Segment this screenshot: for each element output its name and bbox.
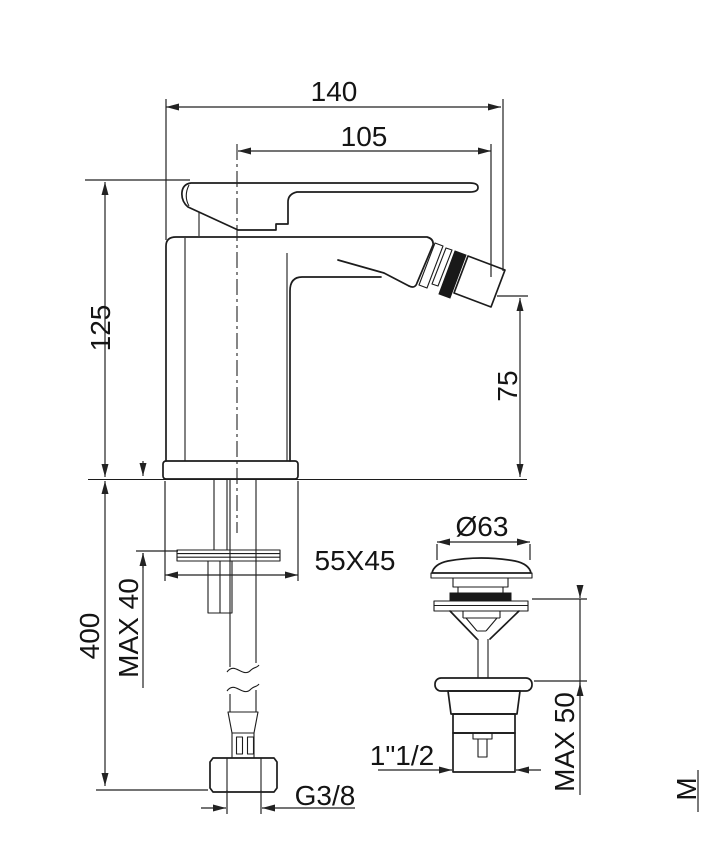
dim-waste-max-deck-label: MAX 50 [549, 692, 580, 792]
mixer-body [166, 237, 433, 461]
base-and-deck [88, 461, 527, 480]
break-symbol [227, 684, 259, 692]
waste-stem [478, 639, 488, 678]
break-symbol [227, 665, 259, 673]
edge-partial-label: M [671, 777, 702, 800]
dimension-edge-partial: M [671, 770, 702, 812]
hose-hex-nut [210, 758, 277, 792]
waste-flange [435, 678, 532, 691]
dim-base-footprint-label: 55X45 [315, 545, 396, 576]
dim-height-body-label: 125 [85, 305, 116, 352]
waste-pin [473, 733, 492, 739]
dimension-125: 125 [85, 180, 190, 477]
dimension-140: 140 [166, 76, 503, 271]
dimension-75: 75 [492, 296, 528, 477]
dimension-g38: G3/8 [201, 780, 355, 814]
technical-drawing: 140 105 125 75 400 [0, 0, 704, 861]
base-plate [163, 461, 298, 479]
dim-projection-total-label: 140 [311, 76, 358, 107]
dim-hose-length-label: 400 [74, 613, 105, 660]
waste-cap [432, 558, 531, 573]
dim-waste-cap-diameter-label: Ø63 [456, 511, 509, 542]
clamp-washer [177, 550, 280, 561]
dim-waste-body-thread-label: 1"1/2 [370, 740, 434, 771]
threaded-stud [214, 479, 227, 550]
drawing-sheet: 140 105 125 75 400 [0, 0, 704, 861]
dim-height-spout-label: 75 [492, 370, 523, 401]
mixer-side-view [88, 183, 527, 792]
dim-hose-thread-label: G3/8 [295, 780, 356, 811]
hose-collar [228, 712, 258, 733]
dim-max-deck-thickness-label: MAX 40 [113, 578, 144, 678]
spout-aerator [419, 243, 505, 307]
supply-hose [210, 479, 277, 792]
mounting-hardware [177, 479, 280, 613]
dim-projection-spout-label: 105 [341, 121, 388, 152]
handle-lever [182, 183, 478, 236]
waste-funnel [450, 611, 519, 639]
dimension-max-50: MAX 50 [532, 585, 587, 795]
dimension-diameter-63: Ø63 [437, 511, 530, 560]
o-ring [450, 593, 511, 601]
pop-up-waste-detail [431, 558, 532, 772]
dimensions: 140 105 125 75 400 [74, 76, 702, 814]
dimension-55x45: 55X45 [165, 481, 395, 581]
